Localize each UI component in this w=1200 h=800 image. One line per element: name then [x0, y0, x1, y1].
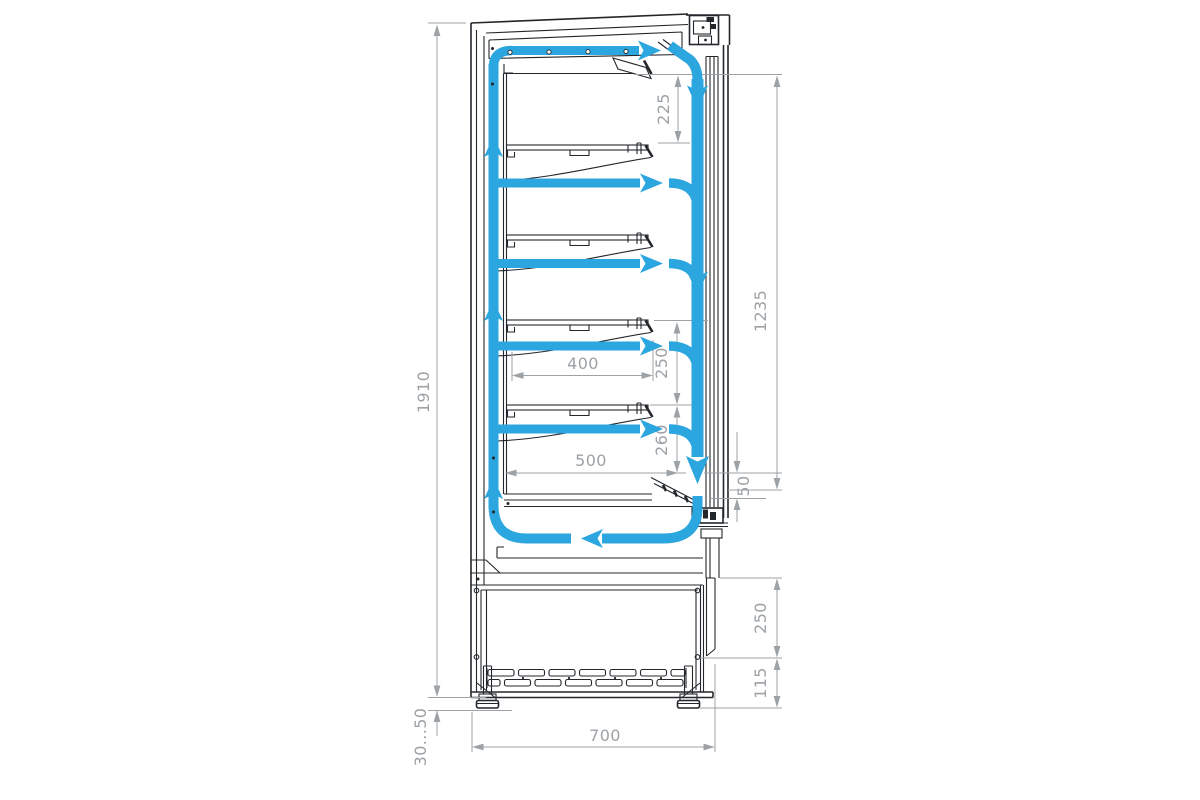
dim-label-air-gap: 50 — [734, 475, 753, 496]
dim-shelf-width: 400 — [512, 354, 653, 379]
drawing-canvas: 1910 30...50 225 1235 250 — [0, 0, 1200, 800]
airflow-return-inlet — [663, 496, 698, 539]
dim-label-top-clearance: 225 — [654, 93, 673, 125]
dim-label-overall-height: 1910 — [414, 371, 433, 413]
dim-label-vent-band: 115 — [751, 667, 770, 699]
dim-overall-height: 1910 — [414, 25, 440, 698]
lower-band — [471, 538, 719, 585]
dim-opening-height: 1235 — [751, 76, 780, 490]
dim-top-clearance: 225 — [654, 76, 681, 143]
technical-drawing: 1910 30...50 225 1235 250 — [0, 0, 1200, 800]
dim-label-opening-height: 1235 — [751, 290, 770, 332]
dim-shelf-pitch: 250 — [652, 322, 680, 405]
dimension-annotations: 1910 30...50 225 1235 250 — [411, 23, 782, 766]
dim-label-overall-depth: 700 — [589, 726, 621, 745]
airflow-arrows — [484, 41, 709, 549]
dim-label-deck-width: 500 — [575, 451, 607, 470]
adjustable-foot-right — [678, 666, 701, 708]
dim-air-gap: 50 — [734, 432, 753, 522]
dim-label-shelf-pitch: 250 — [652, 347, 671, 379]
dim-label-machine-bay: 250 — [751, 602, 770, 634]
dim-leg-range: 30...50 — [411, 708, 440, 767]
dim-machine-bay: 250 — [751, 579, 780, 658]
bottom-deck — [504, 478, 700, 521]
airflow-return-duct — [494, 505, 572, 539]
shelf-4 — [496, 403, 653, 441]
airflow-arrowhead — [638, 41, 661, 61]
dim-vent-band: 115 — [751, 659, 780, 708]
dim-overall-depth: 700 — [472, 726, 715, 750]
dim-label-leg-range: 30...50 — [411, 708, 430, 767]
door-hinge-detail — [686, 15, 730, 45]
shelf-1 — [496, 143, 653, 181]
dim-label-shelf-width: 400 — [567, 354, 599, 373]
ventilation-grille — [487, 668, 686, 688]
dim-bottom-clearance: 260 — [652, 406, 680, 473]
